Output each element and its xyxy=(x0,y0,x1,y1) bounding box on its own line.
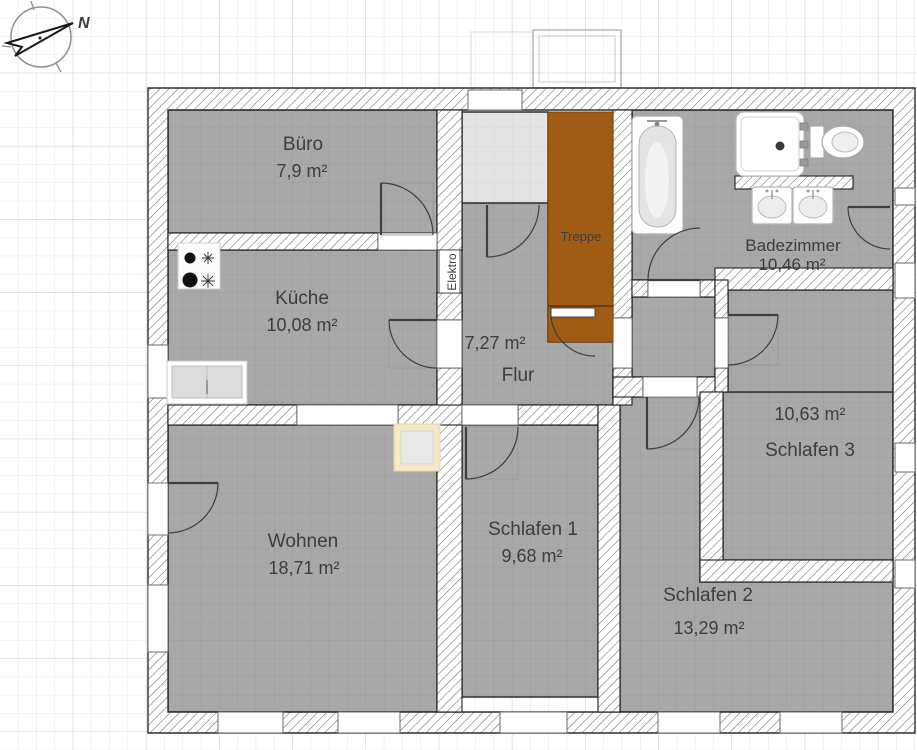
window[interactable] xyxy=(895,443,915,472)
room-label-schlafen1: Schlafen 1 xyxy=(488,519,578,540)
burner-icon xyxy=(183,273,198,288)
window[interactable] xyxy=(895,560,915,588)
room-area-flur: 7,27 m² xyxy=(464,333,525,353)
window[interactable] xyxy=(500,712,567,733)
staircase[interactable]: Treppe xyxy=(548,112,613,356)
corridor-floor[interactable] xyxy=(728,290,893,392)
wall-segment[interactable] xyxy=(168,405,297,425)
kitchen-counter[interactable] xyxy=(167,361,247,404)
stairs-label: Treppe xyxy=(561,229,602,244)
tap-icon xyxy=(800,123,808,166)
stove[interactable] xyxy=(178,243,220,289)
room-area-schlafen3: 10,63 m² xyxy=(774,404,845,424)
inner-hall-floor[interactable] xyxy=(632,297,715,377)
wall-segment[interactable] xyxy=(613,377,643,397)
wall-segment[interactable] xyxy=(598,405,620,712)
window[interactable] xyxy=(148,345,168,398)
faucet-icon xyxy=(655,122,660,127)
entry-vestibule-floor[interactable] xyxy=(462,112,548,203)
window[interactable] xyxy=(148,585,168,652)
electrical-label: Elektro xyxy=(445,253,459,291)
room-area-schlafen2: 13,29 m² xyxy=(673,618,744,638)
room-label-buero: Büro xyxy=(283,134,323,155)
room-area-kueche: 10,08 m² xyxy=(266,315,337,335)
room-label-flur: Flur xyxy=(502,365,535,386)
wall-segment[interactable] xyxy=(518,405,598,425)
wall-segment[interactable] xyxy=(700,280,715,297)
door-opening xyxy=(643,377,697,397)
door-opening xyxy=(613,318,632,368)
wall-segment[interactable] xyxy=(398,405,462,425)
room-label-badezimmer: Badezimmer xyxy=(745,236,841,255)
shower[interactable] xyxy=(736,112,808,176)
north-label: N xyxy=(78,15,90,32)
window[interactable] xyxy=(468,90,522,110)
wall-segment[interactable] xyxy=(632,280,648,297)
wall-segment[interactable] xyxy=(700,560,893,582)
window[interactable] xyxy=(895,263,915,298)
wall-segment[interactable] xyxy=(715,368,728,392)
bathtub[interactable] xyxy=(632,116,683,234)
wall-segment[interactable] xyxy=(613,110,632,318)
window[interactable] xyxy=(895,188,915,205)
electrical-panel[interactable]: Elektro xyxy=(439,250,460,293)
room-area-wohnen: 18,71 m² xyxy=(268,558,339,578)
room-label-schlafen3: Schlafen 3 xyxy=(765,440,855,461)
window[interactable] xyxy=(658,712,720,733)
drain-icon xyxy=(776,142,785,151)
door-opening xyxy=(378,233,437,250)
door-opening xyxy=(148,483,168,535)
toilet[interactable] xyxy=(810,126,864,158)
wall-segment[interactable] xyxy=(715,280,728,318)
room-area-badezimmer: 10,46 m² xyxy=(758,255,825,274)
window[interactable] xyxy=(338,712,400,733)
washbasin[interactable] xyxy=(793,187,833,224)
door-opening xyxy=(715,318,728,368)
floorplan-canvas: N xyxy=(0,0,917,750)
door-opening xyxy=(648,280,700,297)
shaft-block[interactable] xyxy=(394,424,440,471)
wall-segment[interactable] xyxy=(700,392,723,582)
washbasin[interactable] xyxy=(752,187,792,224)
room-area-buero: 7,9 m² xyxy=(276,161,327,181)
room-area-schlafen1: 9,68 m² xyxy=(501,546,562,566)
room-label-schlafen2: Schlafen 2 xyxy=(663,585,753,606)
stair-door-leaf[interactable] xyxy=(551,308,595,317)
door-opening xyxy=(437,320,462,368)
door-opening xyxy=(462,405,518,425)
wall-segment[interactable] xyxy=(437,110,462,250)
wall-opening xyxy=(297,405,398,425)
wall-segment[interactable] xyxy=(437,293,462,320)
room-label-kueche: Küche xyxy=(275,288,329,309)
floorplan-drawing: N xyxy=(0,0,917,750)
window[interactable] xyxy=(780,712,842,733)
room-label-wohnen: Wohnen xyxy=(268,531,338,552)
window[interactable] xyxy=(218,712,283,733)
burner-icon xyxy=(185,253,196,264)
